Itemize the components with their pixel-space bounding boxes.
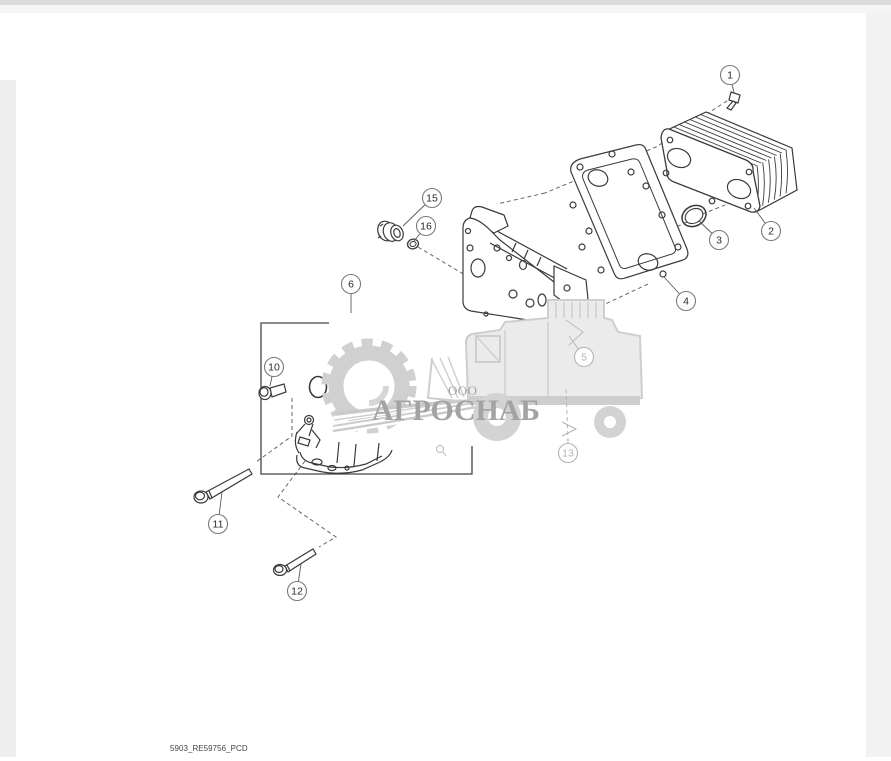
callout-balloon-13[interactable]: 13	[559, 441, 578, 463]
callout-balloon-10[interactable]: 10	[265, 358, 284, 387]
top-bar	[0, 0, 891, 5]
callout-balloon-4[interactable]: 4	[664, 277, 696, 311]
callout-number-13: 13	[562, 448, 574, 460]
watermark: ООО АГРОСНАБ	[326, 300, 642, 456]
callout-number-4: 4	[683, 296, 689, 308]
callout-number-12: 12	[291, 586, 303, 598]
callout-number-10: 10	[268, 362, 280, 374]
part-bolt-12	[274, 549, 317, 576]
watermark-company-name: АГРОСНАБ	[372, 394, 540, 427]
callout-number-11: 11	[213, 519, 224, 531]
upper-strip	[0, 5, 891, 13]
parts-catalog-page: ООО АГРОСНАБ 123456101112131516 5903_RE5…	[0, 0, 891, 761]
left-top-notch	[0, 13, 16, 80]
right-margin	[866, 13, 891, 757]
window-frame	[0, 0, 891, 757]
callout-balloon-3[interactable]: 3	[699, 221, 729, 250]
callout-balloon-6[interactable]: 6	[342, 275, 361, 314]
callout-number-1: 1	[727, 70, 733, 82]
part-bolt-10	[259, 384, 286, 400]
callout-balloon-2[interactable]: 2	[754, 208, 781, 241]
callout-number-16: 16	[420, 221, 432, 233]
callout-number-6: 6	[348, 279, 354, 291]
part-bolt-1	[727, 92, 740, 110]
part-bolt-11	[194, 469, 252, 503]
footer-drawing-code: 5903_RE59756_PCD	[170, 744, 248, 753]
callout-number-3: 3	[716, 235, 722, 247]
callout-balloon-1[interactable]: 1	[721, 66, 740, 94]
callout-number-15: 15	[426, 193, 438, 205]
callout-number-2: 2	[768, 226, 774, 238]
part-oil-cooler	[661, 112, 797, 212]
diagram-canvas: ООО АГРОСНАБ 123456101112131516 5903_RE5…	[0, 0, 891, 761]
callout-balloon-16[interactable]: 16	[414, 217, 436, 242]
left-margin	[0, 80, 16, 757]
part-plug	[375, 219, 405, 244]
part-plug-o-ring	[406, 238, 419, 250]
callout-number-5: 5	[581, 352, 587, 364]
